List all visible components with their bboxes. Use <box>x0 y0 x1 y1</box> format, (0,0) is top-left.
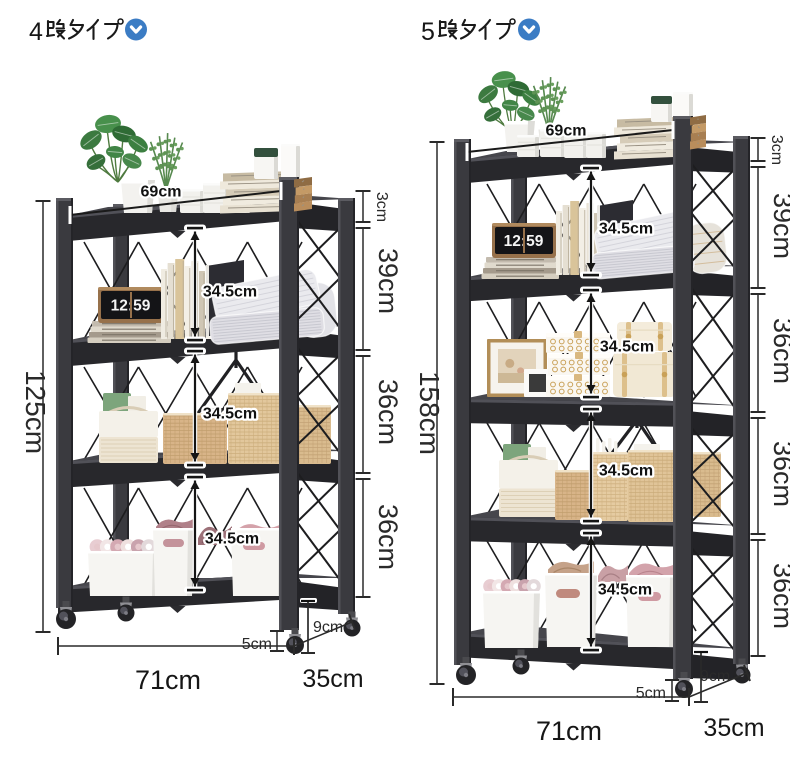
svg-text:34.5cm: 34.5cm <box>598 582 652 599</box>
svg-text:35cm: 35cm <box>302 665 363 693</box>
svg-text:34.5cm: 34.5cm <box>203 284 257 301</box>
svg-text:34.5cm: 34.5cm <box>600 339 654 356</box>
svg-text:36cm: 36cm <box>768 318 790 384</box>
svg-text:3cm: 3cm <box>768 135 785 165</box>
svg-text:5cm: 5cm <box>242 636 272 653</box>
svg-text:34.5cm: 34.5cm <box>599 221 653 238</box>
svg-text:69cm: 69cm <box>141 184 182 201</box>
svg-text:36cm: 36cm <box>373 504 403 570</box>
svg-text:34.5cm: 34.5cm <box>203 406 257 423</box>
svg-text:71cm: 71cm <box>135 665 201 695</box>
svg-text:34.5cm: 34.5cm <box>205 531 259 548</box>
svg-text:36cm: 36cm <box>768 563 790 629</box>
svg-text:5cm: 5cm <box>636 685 666 702</box>
svg-text:39cm: 39cm <box>373 248 403 314</box>
svg-text:36cm: 36cm <box>373 379 403 445</box>
svg-text:69cm: 69cm <box>546 123 587 140</box>
svg-text:35cm: 35cm <box>703 714 764 742</box>
svg-text:39cm: 39cm <box>768 193 790 259</box>
svg-text:4: 4 <box>29 18 43 46</box>
svg-text:34.5cm: 34.5cm <box>599 463 653 480</box>
svg-text:125cm: 125cm <box>20 370 51 454</box>
svg-text:5: 5 <box>421 18 435 46</box>
svg-text:71cm: 71cm <box>536 716 602 746</box>
svg-text:158cm: 158cm <box>414 371 445 455</box>
svg-text:3cm: 3cm <box>373 192 390 222</box>
svg-text:36cm: 36cm <box>768 441 790 507</box>
